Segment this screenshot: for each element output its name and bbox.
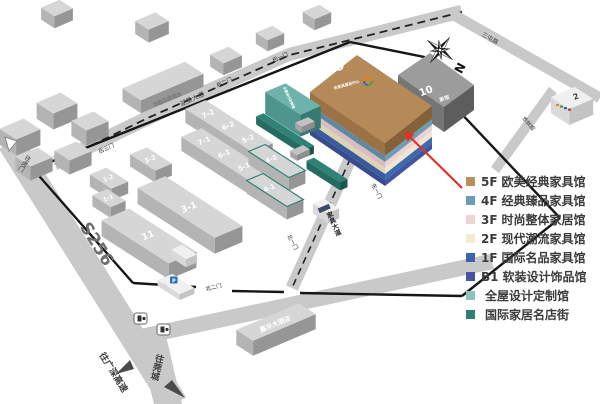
legend: 5F欧美经典家具馆 4F经典臻品家具馆 3F时尚整体家居馆 2F现代潮流家具馆 … bbox=[466, 172, 598, 324]
road-right bbox=[491, 87, 557, 174]
hall-8-label: 8 bbox=[287, 74, 295, 84]
legend-label: 时尚整体家居馆 bbox=[502, 211, 586, 228]
legend-floor: B1 bbox=[481, 270, 499, 284]
legend-label: 全屋设计定制馆 bbox=[485, 287, 569, 304]
legend-item: 1F国际名品家具馆 bbox=[466, 248, 598, 267]
building-q9 bbox=[303, 5, 331, 31]
parking-sign: P bbox=[170, 277, 178, 285]
legend-floor: 3F bbox=[481, 213, 498, 227]
legend-label: 现代潮流家具馆 bbox=[502, 230, 586, 247]
legend-label: 国际家居名店街 bbox=[485, 306, 569, 323]
expressway-arrow-icon bbox=[116, 360, 134, 374]
legend-swatch bbox=[466, 177, 475, 186]
legend-swatch bbox=[466, 253, 475, 262]
legend-floor: 2F bbox=[481, 232, 498, 246]
legend-swatch bbox=[466, 215, 475, 224]
legend-item: 全屋设计定制馆 bbox=[466, 286, 598, 305]
legend-floor: 5F bbox=[481, 175, 498, 189]
hall-9-label: 9 bbox=[334, 58, 346, 74]
legend-swatch bbox=[466, 196, 475, 205]
legend-floor: 1F bbox=[481, 251, 498, 265]
legend-item: 5F欧美经典家具馆 bbox=[466, 172, 598, 191]
mall-map-page: P 7-2 6-2 5-2 7-1 6-1 5-1 3-2 1-2 1-1 11… bbox=[0, 0, 600, 404]
building-q10 bbox=[41, 0, 73, 28]
parking-p-label: P bbox=[172, 279, 176, 285]
legend-item: 2F现代潮流家具馆 bbox=[466, 229, 598, 248]
direction-expressway-label: 往广深高速 bbox=[97, 350, 131, 395]
gate-north2-label: 北二门 bbox=[205, 281, 223, 293]
traffic-signal-icon bbox=[134, 313, 147, 324]
legend-swatch bbox=[466, 291, 475, 300]
building-q6 bbox=[135, 12, 169, 42]
legend-item: B1软装设计饰品馆 bbox=[466, 267, 598, 286]
legend-item: 4F经典臻品家具馆 bbox=[466, 191, 598, 210]
building-q2 bbox=[37, 93, 78, 130]
legend-label: 经典臻品家具馆 bbox=[502, 192, 586, 209]
legend-item: 3F时尚整体家居馆 bbox=[466, 210, 598, 229]
legend-label: 国际名品家具馆 bbox=[502, 249, 586, 266]
legend-swatch bbox=[466, 234, 475, 243]
legend-floor: 4F bbox=[481, 194, 498, 208]
legend-label: 欧美经典家具馆 bbox=[502, 173, 586, 190]
building-q8 bbox=[256, 26, 284, 52]
gate-east1-label: 东一门 bbox=[369, 182, 384, 200]
legend-label: 软装设计饰品馆 bbox=[503, 268, 587, 285]
legend-swatch bbox=[466, 272, 475, 281]
gate-north1-label: 北一门 bbox=[285, 233, 300, 251]
legend-item: 国际家居名店街 bbox=[466, 305, 598, 324]
traffic-signal-icon bbox=[157, 324, 170, 335]
legend-swatch bbox=[466, 310, 475, 319]
